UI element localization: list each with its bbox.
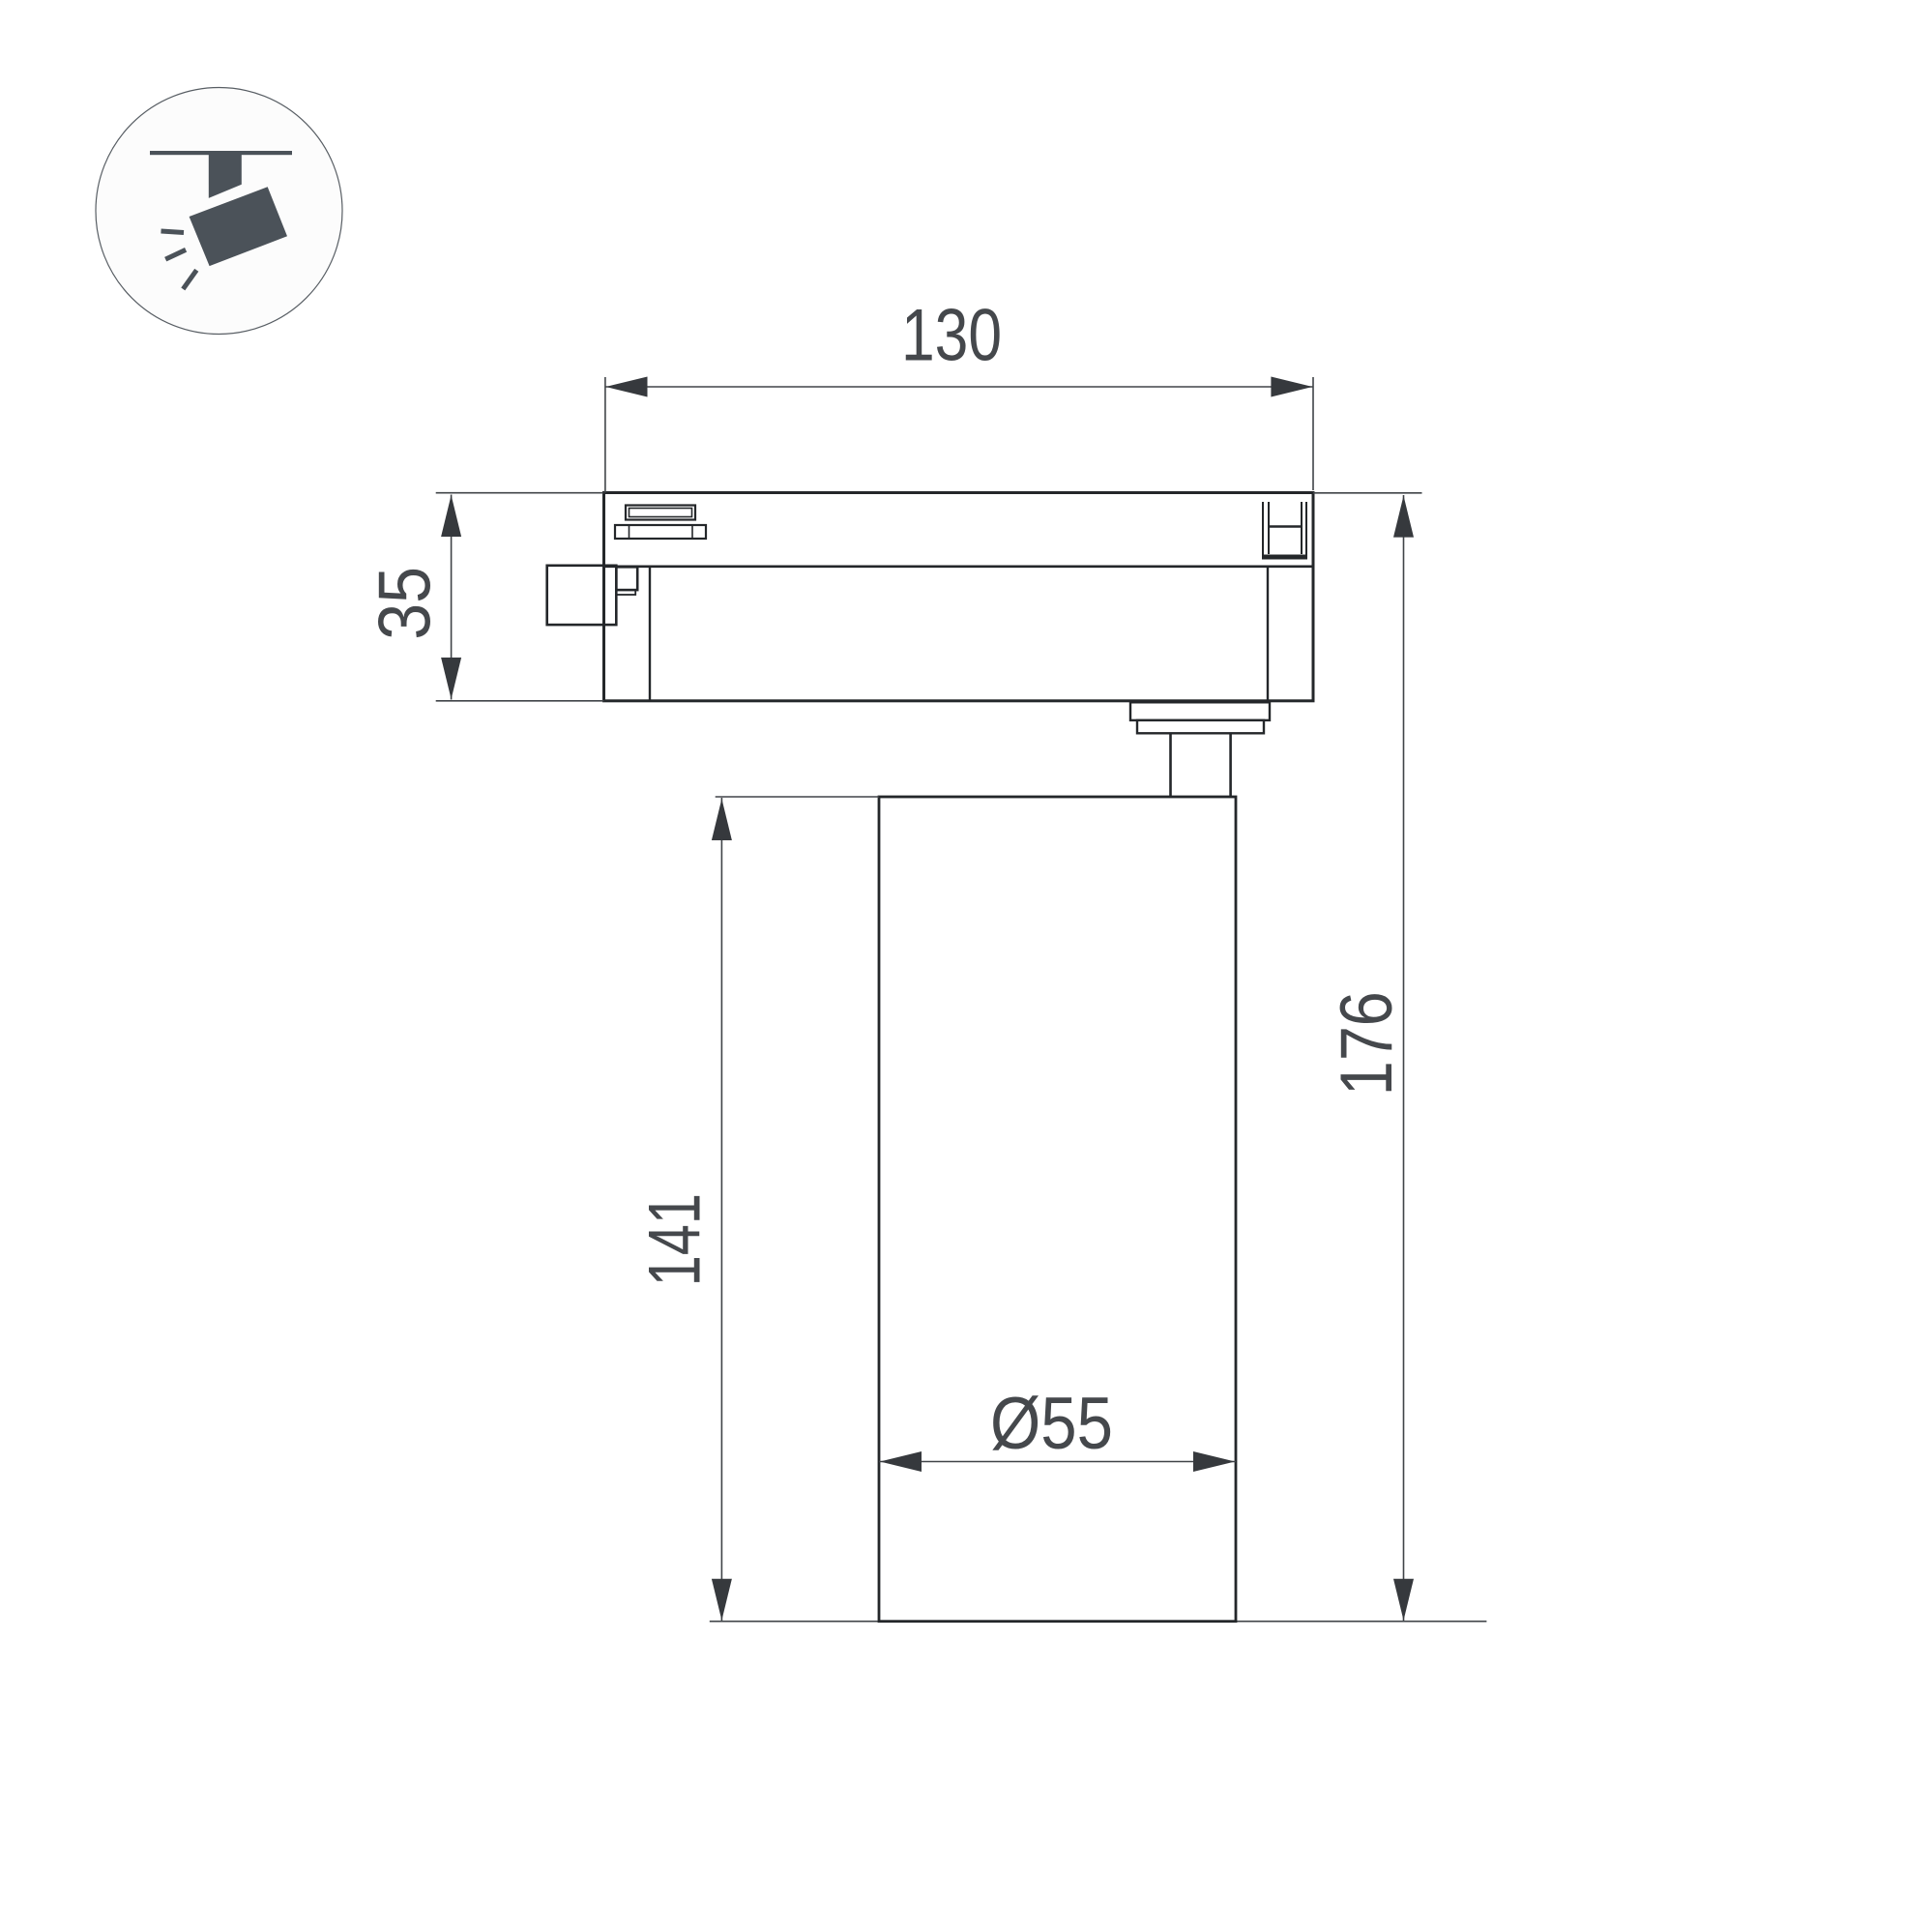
svg-text:Ø55: Ø55 (990, 1383, 1113, 1465)
svg-text:176: 176 (1325, 991, 1407, 1096)
svg-text:130: 130 (901, 293, 1002, 375)
svg-text:141: 141 (634, 1193, 716, 1286)
svg-text:35: 35 (365, 567, 446, 640)
